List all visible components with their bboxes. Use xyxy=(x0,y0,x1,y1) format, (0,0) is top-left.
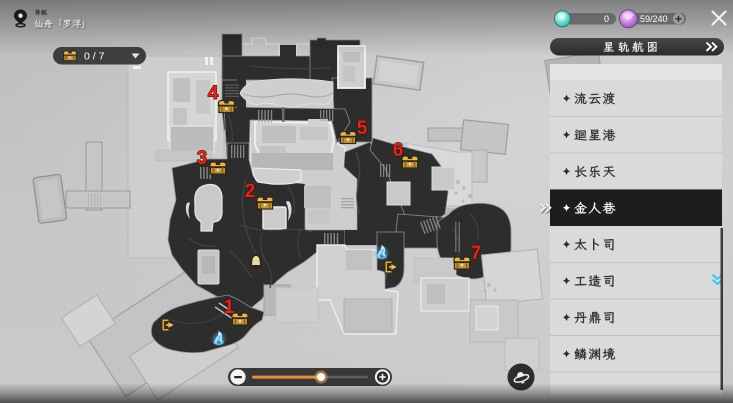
svg-text:5: 5 xyxy=(357,118,368,139)
svg-text:0: 0 xyxy=(604,14,609,24)
svg-text:0 / 7: 0 / 7 xyxy=(84,51,105,63)
svg-text:6: 6 xyxy=(393,140,404,161)
svg-text:7: 7 xyxy=(471,243,482,264)
svg-text:1: 1 xyxy=(224,297,235,318)
svg-text:2: 2 xyxy=(245,181,256,202)
svg-text:4: 4 xyxy=(208,83,219,104)
svg-text:3: 3 xyxy=(197,148,208,169)
svg-text:59/240: 59/240 xyxy=(640,14,668,24)
